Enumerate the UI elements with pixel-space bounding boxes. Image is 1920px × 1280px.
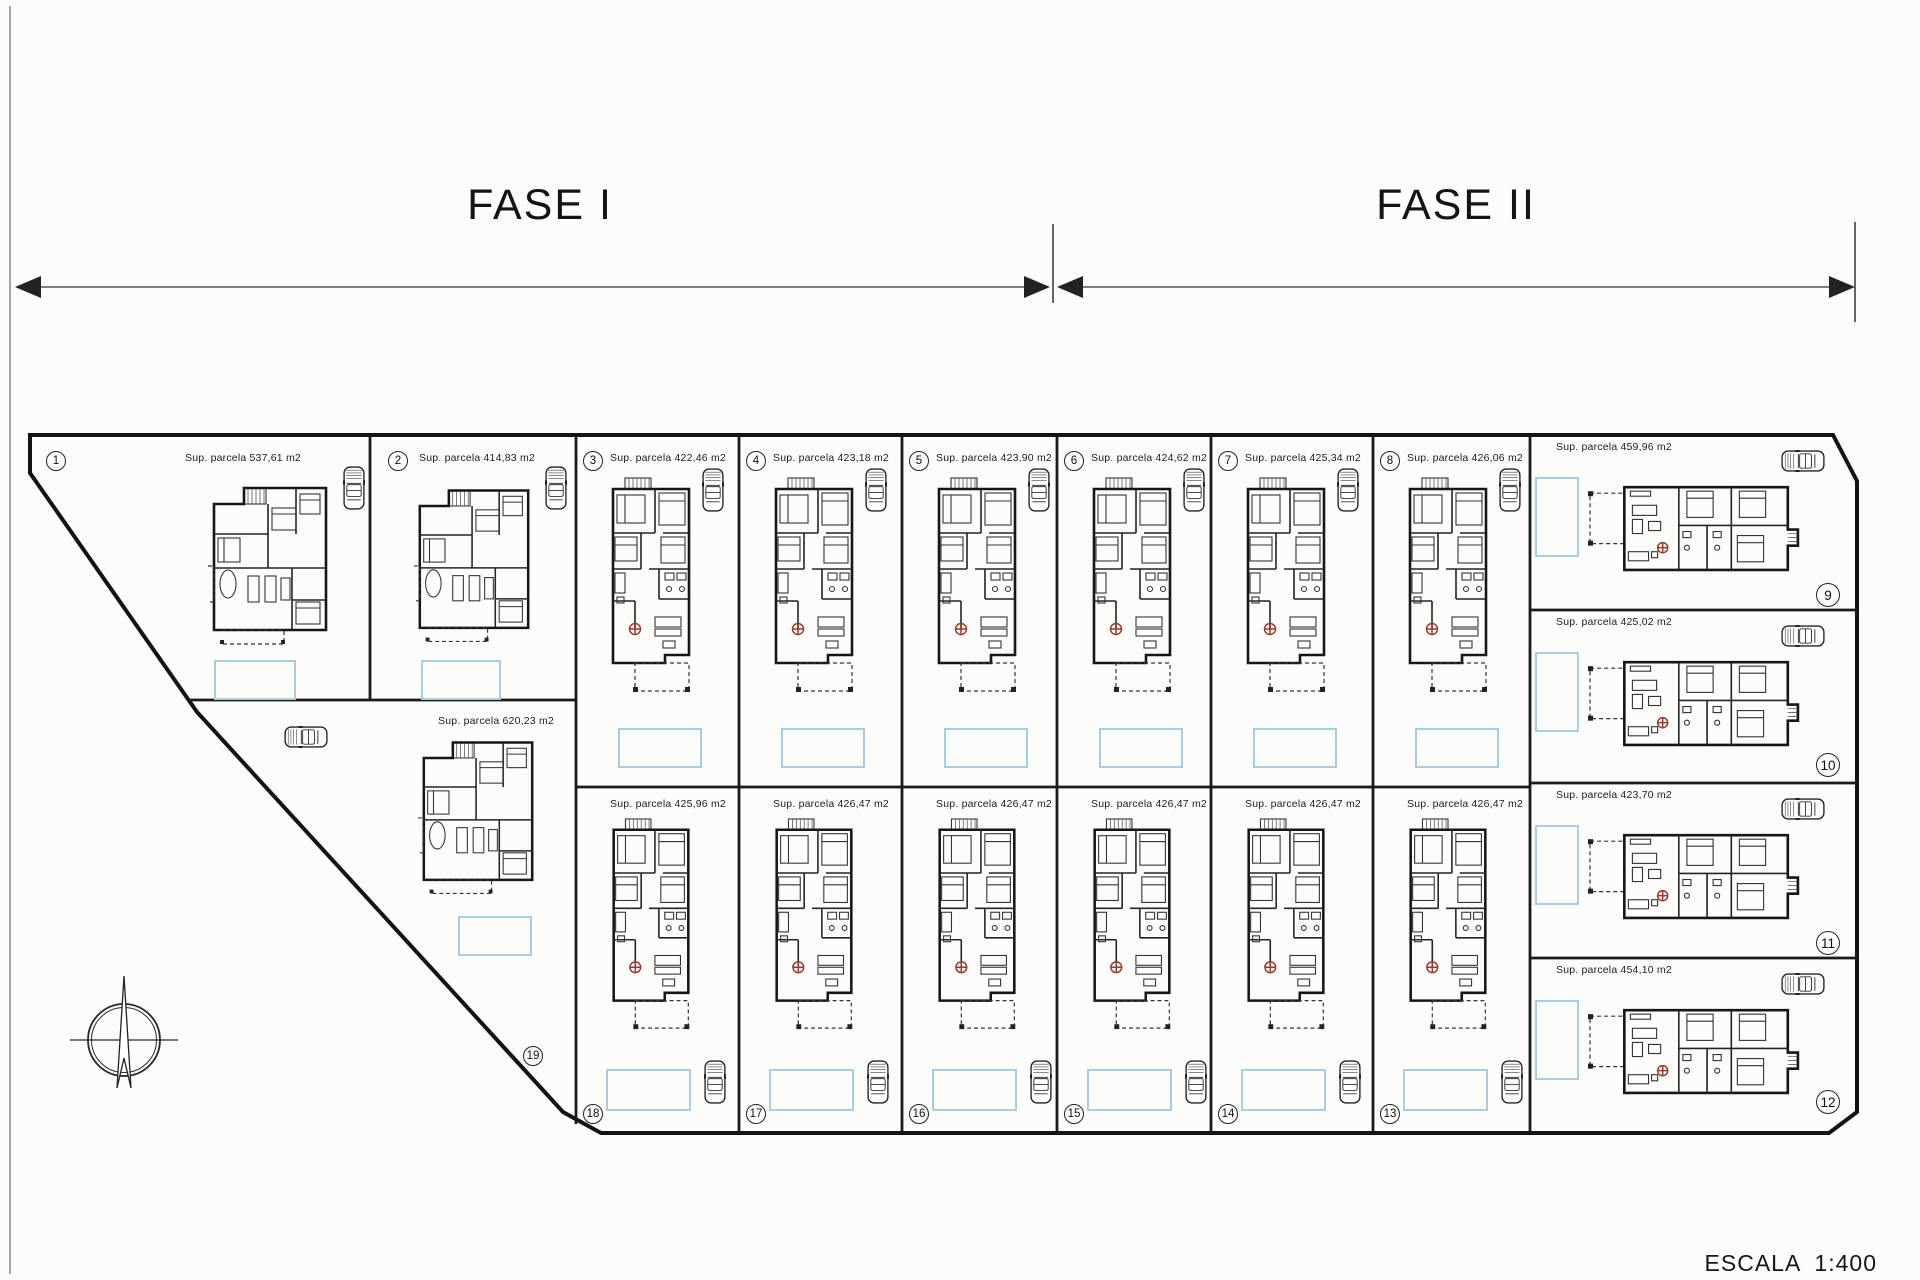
parcel-area-label: Sup. parcela 426,47 m2: [1245, 798, 1361, 811]
pool: [1415, 728, 1499, 768]
pool: [458, 916, 532, 956]
parcel-number-badge: 17: [746, 1104, 766, 1124]
car-icon: [1028, 464, 1050, 516]
pool: [932, 1069, 1017, 1111]
pool: [214, 660, 296, 700]
parcel-number-badge: 15: [1064, 1104, 1084, 1124]
floor-plan: [604, 818, 698, 1036]
car-icon: [1185, 1056, 1207, 1108]
parcel-number-badge: 11: [1816, 931, 1840, 955]
floor-plan: [930, 477, 1024, 699]
parcel-number-badge: 6: [1064, 451, 1084, 471]
car-icon: [1777, 798, 1829, 820]
parcel-area-label: Sup. parcela 425,96 m2: [610, 798, 726, 811]
pool: [1087, 1069, 1172, 1111]
parcel-number-badge: 7: [1218, 451, 1238, 471]
car-icon: [280, 726, 332, 748]
pool: [1099, 728, 1183, 768]
floor-plan: [1085, 818, 1179, 1036]
pool: [1535, 1000, 1579, 1080]
car-icon: [545, 462, 567, 514]
car-icon: [702, 464, 724, 516]
car-icon: [1777, 625, 1829, 647]
pool: [1535, 477, 1579, 557]
car-icon: [1777, 973, 1829, 995]
floor-plan: [1588, 654, 1808, 752]
parcel-number-badge: 13: [1380, 1104, 1400, 1124]
pool: [1241, 1069, 1326, 1111]
car-icon: [1183, 464, 1205, 516]
pool: [781, 728, 865, 768]
floor-plan: [1401, 477, 1495, 699]
parcel-number-badge: 19: [523, 1046, 543, 1066]
parcel-area-label: Sup. parcela 537,61 m2: [185, 452, 301, 465]
parcel-area-label: Sup. parcela 425,02 m2: [1556, 616, 1672, 629]
parcel-number-badge: 4: [746, 451, 766, 471]
car-icon: [1030, 1056, 1052, 1108]
pool: [1403, 1069, 1488, 1111]
floor-plan: [1239, 818, 1333, 1036]
floor-plan: [418, 736, 538, 898]
parcel-area-label: Sup. parcela 426,47 m2: [936, 798, 1052, 811]
pool: [769, 1069, 854, 1111]
floor-plan: [1588, 827, 1808, 925]
parcel-number-badge: 2: [388, 451, 408, 471]
parcel-number-badge: 10: [1816, 753, 1840, 777]
floor-plan: [1401, 818, 1495, 1036]
parcel-number-badge: 16: [909, 1104, 929, 1124]
parcel-area-label: Sup. parcela 423,70 m2: [1556, 789, 1672, 802]
car-icon: [1337, 464, 1359, 516]
parcel-number-badge: 18: [583, 1104, 603, 1124]
pool: [944, 728, 1028, 768]
parcel-area-label: Sup. parcela 426,47 m2: [773, 798, 889, 811]
car-icon: [867, 1056, 889, 1108]
pool: [606, 1069, 691, 1111]
floor-plan: [1085, 477, 1179, 699]
parcel-area-label: Sup. parcela 454,10 m2: [1556, 964, 1672, 977]
car-icon: [704, 1056, 726, 1108]
floor-plan: [604, 477, 698, 699]
floor-plan: [767, 818, 861, 1036]
parcel-number-badge: 8: [1380, 451, 1400, 471]
parcel-number-badge: 9: [1816, 583, 1840, 607]
pool: [421, 660, 501, 700]
parcel-area-label: Sup. parcela 620,23 m2: [438, 715, 554, 728]
pool: [1535, 825, 1579, 905]
parcel-area-label: Sup. parcela 459,96 m2: [1556, 441, 1672, 454]
floor-plan: [414, 482, 534, 648]
pool: [618, 728, 702, 768]
car-icon: [1339, 1056, 1361, 1108]
car-icon: [1777, 450, 1829, 472]
car-icon: [1501, 1056, 1523, 1108]
site-plan-sheet: FASE I FASE II ESCALA 1:400 1Sup. parcel…: [0, 0, 1920, 1280]
parcel-number-badge: 3: [583, 451, 603, 471]
floor-plan: [208, 482, 332, 648]
floor-plan: [1588, 1002, 1808, 1100]
parcels-layer: 1Sup. parcela 537,61 m22Sup. parcela 414…: [0, 0, 1920, 1280]
car-icon: [343, 462, 365, 514]
floor-plan: [767, 477, 861, 699]
floor-plan: [930, 818, 1024, 1036]
parcel-number-badge: 5: [909, 451, 929, 471]
car-icon: [865, 464, 887, 516]
floor-plan: [1239, 477, 1333, 699]
parcel-area-label: Sup. parcela 426,47 m2: [1407, 798, 1523, 811]
parcel-number-badge: 14: [1218, 1104, 1238, 1124]
pool: [1253, 728, 1337, 768]
parcel-number-badge: 12: [1816, 1090, 1840, 1114]
parcel-number-badge: 1: [46, 451, 66, 471]
parcel-area-label: Sup. parcela 414,83 m2: [419, 452, 535, 465]
floor-plan: [1588, 479, 1808, 577]
parcel-area-label: Sup. parcela 426,47 m2: [1091, 798, 1207, 811]
car-icon: [1499, 464, 1521, 516]
pool: [1535, 652, 1579, 732]
